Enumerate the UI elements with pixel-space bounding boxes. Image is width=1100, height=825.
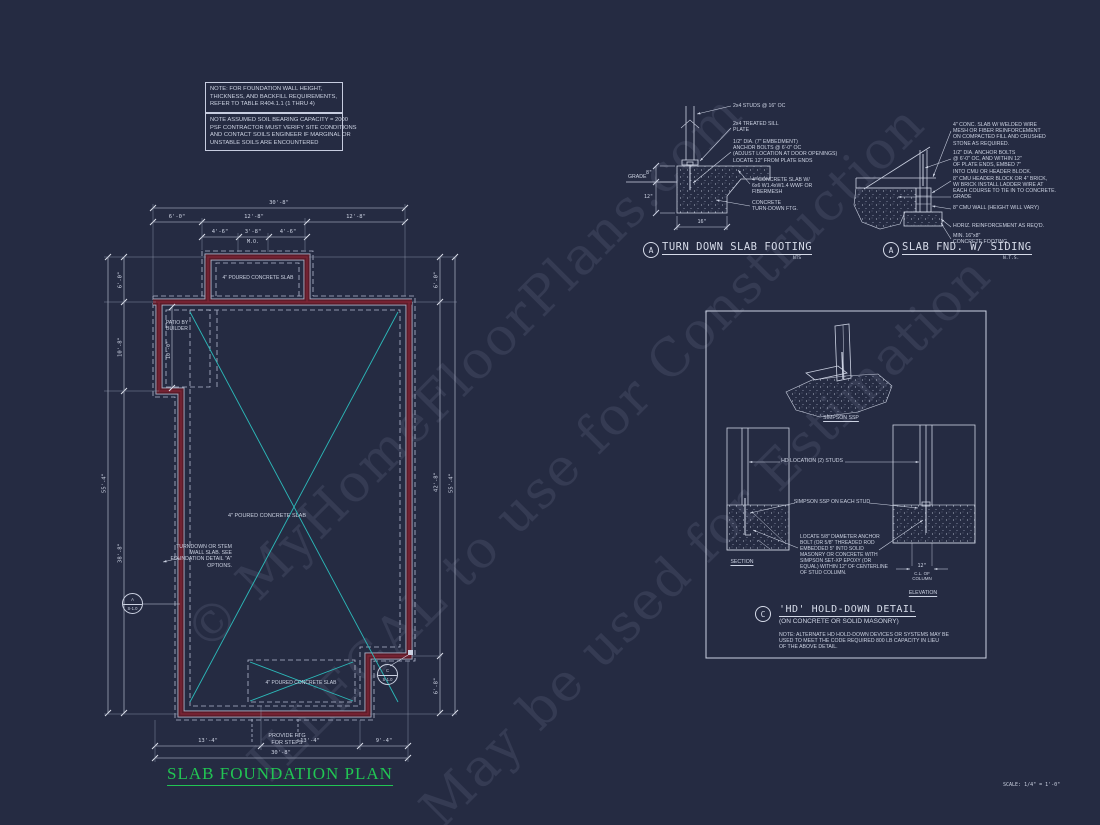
detail-bubble-c: C S-1.0 xyxy=(377,664,398,685)
detail-a-title: TURN DOWN SLAB FOOTING xyxy=(662,241,812,255)
grade-label-turndown: GRADE xyxy=(628,174,646,180)
dim-top-a: 6'-0" xyxy=(169,214,186,221)
dim-top-c: 12'-8" xyxy=(346,214,366,221)
dim-right-c: 6'-8" xyxy=(434,678,441,695)
dim-right-overall: 55'-4" xyxy=(449,473,456,493)
slab-label-top: 4" POURED CONCRETE SLAB xyxy=(223,275,294,281)
callout-cmu-wall: 8" CMU WALL (HEIGHT WILL VARY) xyxy=(953,205,1039,211)
dim-left-overall: 55'-4" xyxy=(102,473,109,493)
dim-8in: 8" xyxy=(646,170,652,176)
foundation-wall-note: NOTE: FOR FOUNDATION WALL HEIGHT, THICKN… xyxy=(205,82,343,113)
slab-label-main: 4" POURED CONCRETE SLAB xyxy=(228,513,306,520)
detail-b-title: SLAB FND. W/ SIDING xyxy=(902,241,1032,255)
callout-horiz-reinf: HORIZ. REINFORCEMENT AS REQ'D. xyxy=(953,223,1044,229)
turndown-note: TURNDOWN OR STEM WALL SLAB. SEE FOUNDATI… xyxy=(128,544,232,569)
dim-top-overall: 30'-8" xyxy=(269,200,289,207)
detail-a-scale: NTS xyxy=(793,256,801,261)
scale-note: SCALE: 1/4" = 1'-0" xyxy=(1003,782,1060,788)
dim-patio: 10'-0" xyxy=(166,341,172,359)
dim-left-b: 10'-8" xyxy=(118,337,125,357)
dim-left-a: 6'-0" xyxy=(118,272,125,289)
steps-note: PROVIDE FTG FOR STEPS xyxy=(268,733,305,746)
locate-anchor-note: LOCATE 5/8" DIAMETER ANCHOR BOLT (OR 5/8… xyxy=(800,534,888,576)
callout-concrete-slab: 4" CONCRETE SLAB W/ 6x6 W1.4xW1.4 WWF OR… xyxy=(752,177,812,196)
dim-top-b: 12'-8" xyxy=(244,214,264,221)
dim-top-mo: M.O. xyxy=(247,239,259,245)
slab-label-porch: 4" POURED CONCRETE SLAB xyxy=(266,680,337,686)
dim-top-e: 3'-8" xyxy=(245,229,262,236)
bubble-c-letter: C xyxy=(378,665,397,676)
bubble-c-sheet: S-1.0 xyxy=(378,676,397,682)
plan-extension-lines xyxy=(104,204,457,762)
dim-right-b: 42'-8" xyxy=(434,472,441,492)
hd-location-label: HD LOCATION (2) STUDS xyxy=(781,458,843,464)
detail-a-bubble: A xyxy=(643,242,659,258)
grade-label-siding: GRADE xyxy=(953,194,971,200)
section-label: SECTION xyxy=(730,559,753,565)
callout-anchor-bolts: 1/2" DIA. (7" EMBEDMENT) ANCHOR BOLTS @ … xyxy=(733,139,837,164)
soil-bearing-note: NOTE ASSUMED SOIL BEARING CAPACITY = 200… xyxy=(205,113,343,151)
callout-siding-bolts: 1/2" DIA. ANCHOR BOLTS @ 6'-0" OC, AND W… xyxy=(953,150,1031,175)
dim-top-d: 4'-6" xyxy=(212,229,229,236)
plan-title: SLAB FOUNDATION PLAN xyxy=(167,764,393,786)
callout-turndown-ftg: CONCRETE TURN-DOWN FTG. xyxy=(752,200,798,212)
dim-bottom-overall: 30'-8" xyxy=(271,750,291,757)
callout-studs: 2x4 STUDS @ 16" OC xyxy=(733,103,785,109)
cl-of-column-label: C.L. OF COLUMN xyxy=(912,571,932,582)
detail-c-subtitle: (ON CONCRETE OR SOLID MASONRY) xyxy=(779,618,899,626)
callout-sill: 2x4 TREATED SILL PLATE xyxy=(733,121,779,133)
plan-dashed-outline xyxy=(153,251,415,742)
linework-layer xyxy=(0,0,1100,825)
detail-c-bubble: C xyxy=(755,606,771,622)
patio-label: PATIO BY BUILDER xyxy=(166,320,188,332)
callout-siding-slab: 4" CONC. SLAB W/ WELDED WIRE MESH OR FIB… xyxy=(953,122,1046,147)
dim-bottom-a: 13'-4" xyxy=(198,738,218,745)
plan-x-brace xyxy=(190,312,398,702)
detail-b-bubble: A xyxy=(883,242,899,258)
detail-c-title: 'HD' HOLD-DOWN DETAIL xyxy=(779,604,916,617)
detail-b-scale: N.T.S. xyxy=(1003,256,1019,261)
dim-top-f: 4'-6" xyxy=(280,229,297,236)
blueprint-sheet: © MyHomeFloorPlans.com ILLEGAL to use fo… xyxy=(0,0,1100,825)
dim-12in: 12" xyxy=(644,194,653,200)
bubble-a-letter: A xyxy=(123,594,142,605)
detail-bubble-a: A S-1.0 xyxy=(122,593,143,614)
ssp-each-stud-label: SIMPSON SSP ON EACH STUD xyxy=(794,499,870,505)
dim-left-c: 38'-8" xyxy=(118,543,125,563)
dim-bottom-c: 9'-4" xyxy=(376,738,393,745)
simpson-ssp-label: SIMPSON SSP xyxy=(823,415,859,421)
dim-right-a: 6'-0" xyxy=(434,272,441,289)
callout-siding-cmu: 8" CMU HEADER BLOCK OR 4" BRICK, W/ BRIC… xyxy=(953,176,1056,195)
hd-dim-12: 12" xyxy=(917,563,926,569)
elevation-label: ELEVATION xyxy=(909,590,937,596)
dim-16in: 16" xyxy=(697,219,706,225)
bubble-a-sheet: S-1.0 xyxy=(123,605,142,611)
detail-c-note: NOTE: ALTERNATE HD HOLD-DOWN DEVICES OR … xyxy=(779,632,949,651)
detail-siding-drawing xyxy=(854,131,951,239)
